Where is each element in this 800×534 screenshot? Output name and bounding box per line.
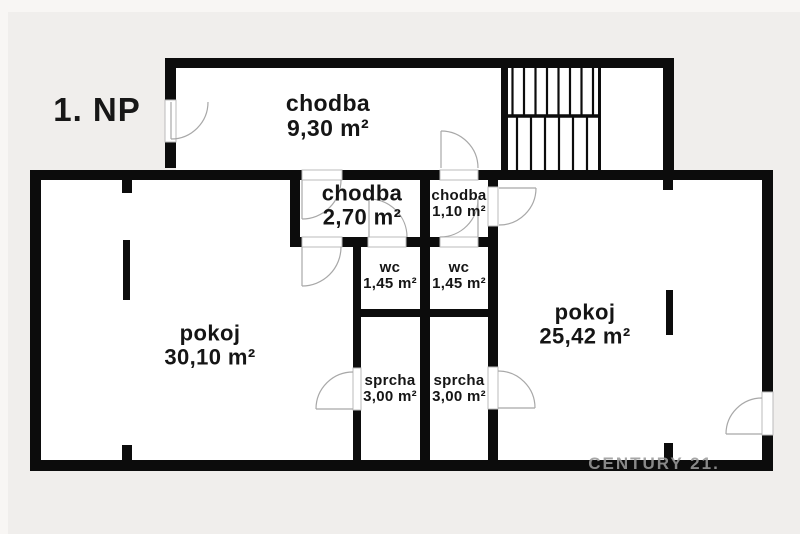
- room-area: 30,10 m²: [164, 345, 255, 369]
- room-name: wc: [380, 260, 401, 276]
- room-name: sprcha: [364, 373, 415, 389]
- century21-watermark: CENTURY 21.: [588, 454, 720, 474]
- room-label-chodba-1: chodba 1,10 m²: [431, 188, 486, 220]
- room-name: sprcha: [433, 373, 484, 389]
- room-label-pokoj-left: pokoj 30,10 m²: [164, 321, 255, 369]
- room-name: chodba: [286, 91, 370, 116]
- floor-title: 1. NP: [53, 91, 141, 129]
- room-label-chodba-main: chodba 9,30 m²: [286, 91, 370, 141]
- room-area: 1,10 m²: [432, 204, 486, 220]
- room-label-sprcha-left: sprcha 3,00 m²: [363, 373, 417, 405]
- room-name: wc: [449, 260, 470, 276]
- room-area: 3,00 m²: [432, 389, 486, 405]
- room-area: 9,30 m²: [287, 116, 369, 141]
- room-area: 25,42 m²: [539, 324, 630, 348]
- room-area: 3,00 m²: [363, 389, 417, 405]
- room-area: 1,45 m²: [432, 276, 486, 292]
- room-label-chodba-2: chodba 2,70 m²: [322, 181, 403, 229]
- room-name: pokoj: [555, 300, 616, 324]
- room-area: 1,45 m²: [363, 276, 417, 292]
- room-label-sprcha-right: sprcha 3,00 m²: [432, 373, 486, 405]
- room-name: chodba: [431, 188, 486, 204]
- room-area: 2,70 m²: [323, 205, 402, 229]
- room-name: chodba: [322, 181, 403, 205]
- room-label-wc-left: wc 1,45 m²: [363, 260, 417, 292]
- room-label-wc-right: wc 1,45 m²: [432, 260, 486, 292]
- room-label-pokoj-right: pokoj 25,42 m²: [539, 300, 630, 348]
- room-name: pokoj: [180, 321, 241, 345]
- floor-plan-canvas: 1. NP chodba 9,30 m² chodba 2,70 m² chod…: [0, 0, 800, 534]
